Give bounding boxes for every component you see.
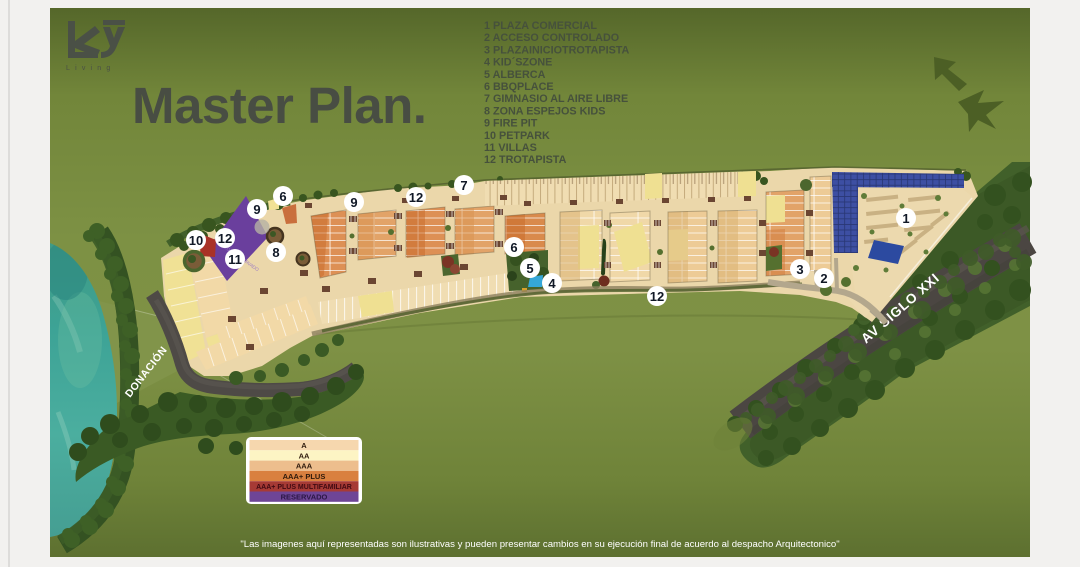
svg-text:10: 10	[189, 233, 203, 248]
svg-text:4 KID´SZONE: 4 KID´SZONE	[484, 57, 552, 69]
svg-text:10 PETPARK: 10 PETPARK	[484, 130, 550, 142]
svg-text:2 ACCESO CONTROLADO: 2 ACCESO CONTROLADO	[484, 32, 619, 44]
svg-text:12: 12	[650, 289, 664, 304]
svg-text:6 BBQPLACE: 6 BBQPLACE	[484, 81, 554, 93]
svg-text:AAA: AAA	[296, 462, 313, 471]
svg-text:5: 5	[526, 261, 533, 276]
svg-text:12 TROTAPISTA: 12 TROTAPISTA	[484, 154, 567, 166]
svg-text:6: 6	[510, 240, 517, 255]
svg-text:RESERVADO: RESERVADO	[281, 493, 328, 502]
svg-text:3 PLAZAINICIOTROTAPISTA: 3 PLAZAINICIOTROTAPISTA	[484, 44, 630, 56]
svg-text:1: 1	[902, 211, 909, 226]
svg-text:7: 7	[460, 178, 467, 193]
svg-text:9: 9	[350, 195, 357, 210]
svg-text:6: 6	[279, 189, 286, 204]
svg-text:A: A	[301, 441, 307, 450]
svg-text:11: 11	[228, 252, 242, 267]
svg-text:9 FIRE PIT: 9 FIRE PIT	[484, 118, 538, 130]
svg-text:7 GIMNASIO AL AIRE LIBRE: 7 GIMNASIO AL AIRE LIBRE	[484, 93, 628, 105]
svg-text:Living: Living	[66, 65, 116, 72]
svg-text:Master Plan.: Master Plan.	[132, 77, 426, 134]
svg-text:AAA+ PLUS: AAA+ PLUS	[283, 472, 326, 481]
svg-text:AA: AA	[299, 451, 310, 460]
svg-text:3: 3	[796, 262, 803, 277]
svg-text:2: 2	[820, 271, 827, 286]
svg-text:8 ZONA ESPEJOS KIDS: 8 ZONA ESPEJOS KIDS	[484, 105, 605, 117]
svg-text:4: 4	[548, 276, 556, 291]
svg-text:1 PLAZA COMERCIAL: 1 PLAZA COMERCIAL	[484, 20, 597, 32]
svg-text:11 VILLAS: 11 VILLAS	[484, 142, 537, 154]
svg-text:5 ALBERCA: 5 ALBERCA	[484, 69, 546, 81]
svg-text:12: 12	[409, 190, 423, 205]
svg-text:12: 12	[218, 231, 232, 246]
svg-text:"Las imagenes aquí representad: "Las imagenes aquí representadas son ilu…	[240, 539, 839, 550]
svg-text:8: 8	[272, 245, 279, 260]
svg-text:AAA+ PLUS MULTIFAMILIAR: AAA+ PLUS MULTIFAMILIAR	[256, 484, 352, 491]
svg-text:9: 9	[253, 202, 260, 217]
